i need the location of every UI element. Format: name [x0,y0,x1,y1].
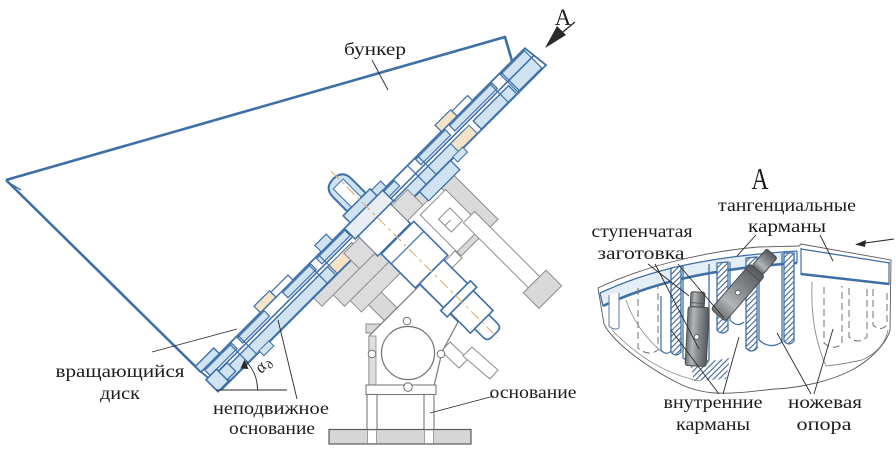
svg-text:основание: основание [229,418,315,438]
svg-text:ступенчатая: ступенчатая [592,221,693,241]
svg-text:ножевая: ножевая [788,392,862,412]
svg-text:бункер: бункер [344,39,406,59]
svg-text:А: А [752,161,769,196]
svg-text:основание: основание [490,382,577,402]
svg-text:карманы: карманы [676,414,750,434]
svg-text:внутренние: внутренние [664,392,763,412]
svg-text:заготовка: заготовка [598,243,685,263]
svg-text:А: А [555,5,572,30]
svg-text:вращающийся: вращающийся [56,361,185,381]
svg-text:карманы: карманы [748,216,826,236]
svg-text:тангенциальные: тангенциальные [718,195,856,215]
svg-text:неподвижное: неподвижное [213,398,329,418]
svg-text:опора: опора [797,414,852,434]
svg-text:диск: диск [100,383,141,403]
